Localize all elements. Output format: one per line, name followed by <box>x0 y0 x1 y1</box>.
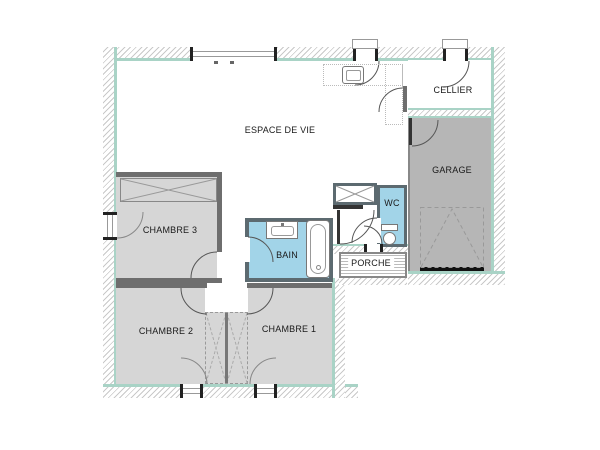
label-bedroom2: CHAMBRE 2 <box>139 326 193 336</box>
wall-garage-bottom <box>408 271 505 285</box>
wall-under-porch <box>339 278 407 285</box>
wall-bedrooms-right <box>332 278 345 398</box>
wall-bottom <box>103 384 358 398</box>
cellier-door-opening <box>443 47 468 61</box>
garage-door-symbol <box>420 207 484 268</box>
bath-sink-basin <box>271 226 294 236</box>
window-living <box>190 47 277 61</box>
back-door-leaf <box>352 39 378 49</box>
label-bedroom1: CHAMBRE 1 <box>262 324 316 334</box>
cellier-door-leaf <box>442 39 468 49</box>
label-cellier: CELLIER <box>434 85 473 95</box>
wall-cellier-garage <box>408 108 491 118</box>
closet-bedroom3 <box>120 178 217 202</box>
label-wc: WC <box>384 198 399 208</box>
iwall-bedroom3-right <box>217 172 222 252</box>
floor-plan: ESPACE DE VIE CELLIER GARAGE WC BAIN POR… <box>0 0 600 450</box>
closet-bedroom3-cross <box>121 179 216 201</box>
closet-hall <box>333 183 377 205</box>
window-living-tick-1 <box>214 61 218 64</box>
kitchen-counter-side <box>385 64 403 125</box>
label-porch: PORCHE <box>348 258 394 268</box>
window-bedroom1 <box>254 384 277 398</box>
window-bedroom2-casement-arc <box>181 358 207 384</box>
window-bedroom1-casement-arc <box>250 358 276 384</box>
closet-hall-cross <box>336 186 374 202</box>
window-living-tick-2 <box>230 61 234 64</box>
kitchen-sink-basin <box>346 70 361 81</box>
toilet-tank-symbol <box>381 224 398 231</box>
toilet-bowl-symbol <box>383 232 396 245</box>
bedroom3-door-arc <box>191 252 217 278</box>
kitchen-sink-symbol <box>342 66 364 84</box>
closet-bedrooms <box>205 312 248 384</box>
label-living: ESPACE DE VIE <box>245 125 315 135</box>
bathtub-symbol <box>306 220 330 278</box>
bathtub-drain <box>316 265 321 270</box>
bedroom2-door-arc <box>181 288 207 314</box>
front-door-arc <box>364 226 382 244</box>
bath-sink-tap <box>281 223 284 226</box>
iwall-cellier-left <box>403 86 407 112</box>
bedroom1-door-arc <box>247 288 273 314</box>
window-bedroom2 <box>180 384 203 398</box>
label-bedroom3: CHAMBRE 3 <box>143 225 197 235</box>
label-garage: GARAGE <box>432 165 472 175</box>
window-bedroom3 <box>103 212 117 240</box>
bath-door-arc <box>248 237 273 262</box>
iwall-hall-top <box>333 205 363 209</box>
cellier-door-arc <box>443 61 469 87</box>
label-bath: BAIN <box>276 250 298 260</box>
iwall-bedroom3-top <box>116 172 222 177</box>
closet-bedrooms-crosses <box>206 313 247 383</box>
wall-right <box>491 47 505 285</box>
window-bedroom3-casement-arc <box>117 212 143 238</box>
bath-sink-symbol <box>266 221 298 239</box>
garage-interior-door-arc <box>412 120 438 146</box>
back-door-opening <box>353 47 378 61</box>
